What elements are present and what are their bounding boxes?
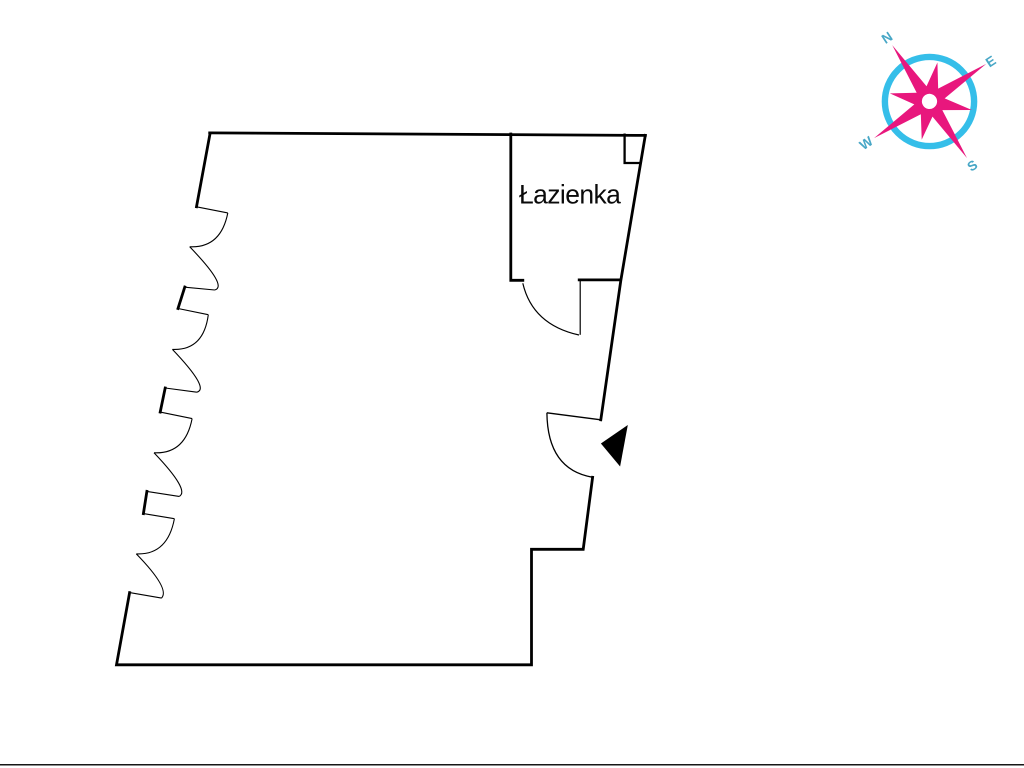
- svg-text:Łazienka: Łazienka: [519, 180, 621, 210]
